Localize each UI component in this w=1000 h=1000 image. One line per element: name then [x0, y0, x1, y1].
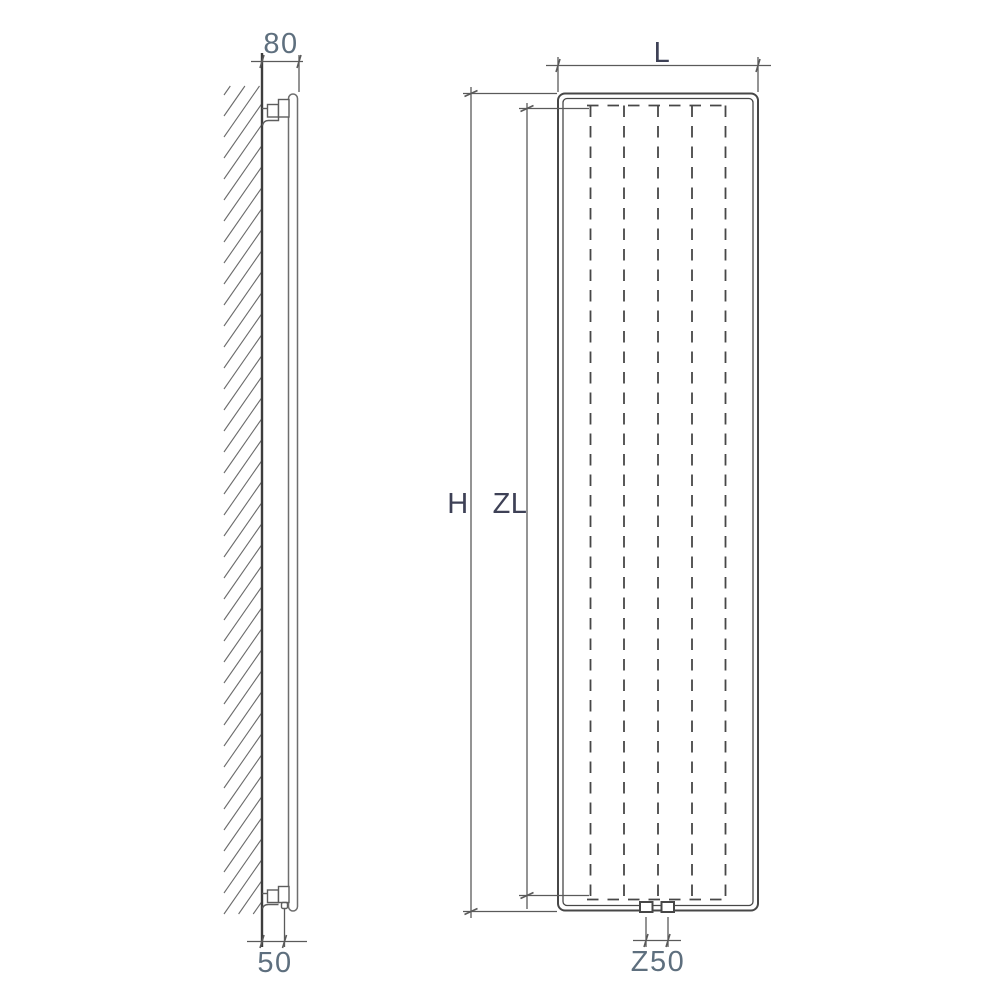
hatch-stroke: [224, 166, 262, 221]
dimension-clearance-50: 50: [247, 909, 307, 980]
hatch-stroke: [224, 775, 262, 830]
dimension-depth-80: 80: [251, 28, 303, 92]
hatch-stroke: [224, 418, 262, 473]
connection-Z50-label: Z50: [631, 946, 685, 978]
front-view: L H ZL Z50: [447, 37, 771, 978]
hatch-stroke: [224, 397, 262, 452]
width-L-label: L: [654, 37, 671, 69]
hatch-stroke: [224, 439, 262, 494]
dimension-width-L: L: [546, 37, 771, 92]
technical-drawing-canvas: 80 50: [0, 0, 1000, 1000]
hatch-stroke: [224, 313, 262, 368]
hatch-stroke: [224, 103, 262, 158]
top-mounting-bracket: [262, 100, 289, 126]
hatch-stroke: [224, 124, 262, 179]
hatch-stroke: [224, 859, 262, 914]
connection-stub-right: [662, 902, 675, 912]
hatch-stroke: [224, 565, 262, 620]
height-H-label: H: [447, 488, 468, 520]
hatch-stroke: [224, 502, 262, 557]
hatch-stroke: [224, 229, 262, 284]
hatch-stroke: [224, 86, 260, 137]
hatch-stroke: [224, 733, 262, 788]
hatch-stroke: [224, 754, 262, 809]
wall-hatching-pattern: [224, 86, 262, 914]
side-view: 80 50: [224, 28, 307, 979]
hatch-stroke: [224, 607, 262, 662]
hatch-stroke: [224, 86, 230, 95]
radiator-panel-side: [289, 94, 298, 911]
clearance-50-label: 50: [257, 947, 292, 979]
hatch-stroke: [239, 880, 262, 914]
hatch-stroke: [224, 544, 262, 599]
hatch-stroke: [224, 691, 262, 746]
hatch-stroke: [224, 586, 262, 641]
hatch-stroke: [224, 670, 262, 725]
hatch-stroke: [224, 628, 262, 683]
hatch-stroke: [224, 796, 262, 851]
element-height-ZL-label: ZL: [493, 488, 528, 520]
bottom-connection-pin: [282, 903, 288, 909]
hatch-stroke: [224, 649, 262, 704]
connection-stub-left: [640, 902, 653, 912]
hatch-stroke: [224, 271, 262, 326]
hatch-stroke: [224, 481, 262, 536]
hatch-stroke: [224, 712, 262, 767]
hatch-stroke: [224, 376, 262, 431]
radiator-dimension-diagram: 80 50: [0, 0, 1000, 1000]
hatch-stroke: [224, 208, 262, 263]
hatch-stroke: [253, 901, 262, 914]
depth-80-label: 80: [263, 28, 298, 60]
hatch-stroke: [224, 334, 262, 389]
hatch-stroke: [224, 460, 262, 515]
dimension-connection-Z50: Z50: [631, 917, 685, 978]
bottom-mounting-bracket: [262, 887, 289, 909]
hatch-stroke: [224, 523, 262, 578]
hatch-stroke: [224, 292, 262, 347]
hatch-stroke: [224, 817, 262, 872]
hatch-stroke: [224, 250, 262, 305]
hatch-stroke: [224, 187, 262, 242]
hatch-stroke: [224, 355, 262, 410]
hatch-stroke: [224, 145, 262, 200]
hatch-stroke: [224, 838, 262, 893]
